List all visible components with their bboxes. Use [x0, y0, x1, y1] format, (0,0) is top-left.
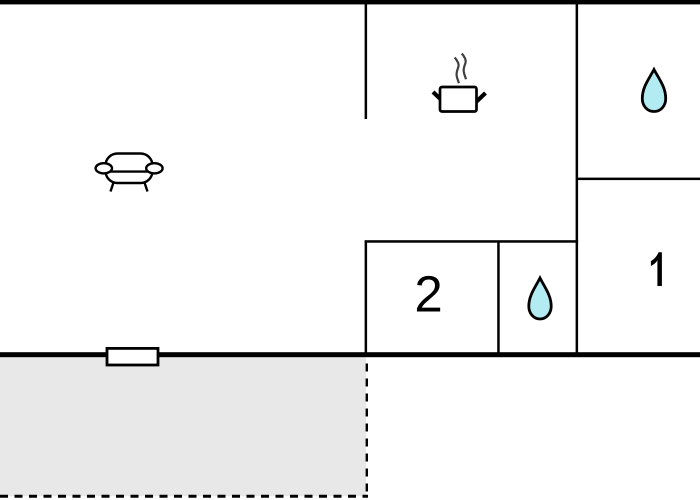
svg-text:2: 2: [414, 266, 442, 323]
